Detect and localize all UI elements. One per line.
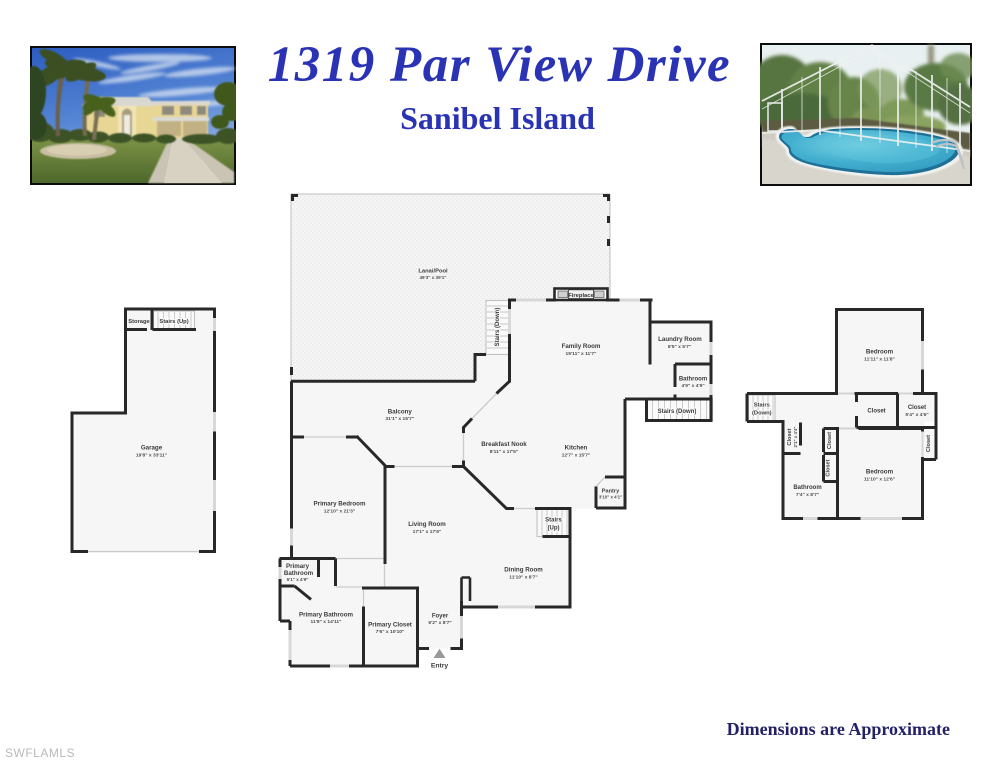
svg-text:19'8" x 33'11": 19'8" x 33'11" <box>136 452 167 458</box>
svg-text:Bedroom: Bedroom <box>866 349 894 356</box>
svg-text:Closet: Closet <box>908 405 926 411</box>
svg-text:Breakfast Nook: Breakfast Nook <box>481 441 527 448</box>
svg-text:Balcony: Balcony <box>388 409 413 416</box>
svg-text:6'2" x 8'7": 6'2" x 8'7" <box>428 620 451 626</box>
svg-text:11'10" x 8'7": 11'10" x 8'7" <box>509 574 537 580</box>
svg-text:Laundry Room: Laundry Room <box>658 336 702 343</box>
svg-text:Foyer: Foyer <box>432 614 449 620</box>
svg-text:Bathroom: Bathroom <box>793 485 821 491</box>
svg-text:Primary Bedroom: Primary Bedroom <box>314 501 366 508</box>
svg-text:Primary Closet: Primary Closet <box>368 622 412 629</box>
svg-text:Bathroom: Bathroom <box>284 570 314 577</box>
svg-text:17'1" x 17'6": 17'1" x 17'6" <box>413 529 442 535</box>
svg-text:11'11" x 11'8": 11'11" x 11'8" <box>864 356 895 362</box>
svg-text:8'11" x 17'5": 8'11" x 17'5" <box>490 449 518 455</box>
svg-text:(Down): (Down) <box>752 411 772 417</box>
svg-text:Family Room: Family Room <box>562 343 601 350</box>
svg-text:5'4" x 4'6": 5'4" x 4'6" <box>905 412 928 418</box>
svg-text:Closet: Closet <box>867 409 885 415</box>
svg-text:Stairs: Stairs <box>545 518 562 524</box>
svg-text:12'7" x 15'7": 12'7" x 15'7" <box>562 452 591 458</box>
svg-text:49'3" x 39'1": 49'3" x 39'1" <box>420 275 447 280</box>
svg-text:Living Room: Living Room <box>408 521 446 528</box>
svg-text:31'1" x 15'7": 31'1" x 15'7" <box>385 416 414 422</box>
svg-text:3'10" x 4'1": 3'10" x 4'1" <box>599 495 622 500</box>
svg-text:Stairs: Stairs <box>754 403 770 409</box>
svg-text:7'4" x 8'7": 7'4" x 8'7" <box>796 492 819 498</box>
svg-text:8'5" x 5'7": 8'5" x 5'7" <box>668 344 691 350</box>
svg-text:2'1" x 4'4": 2'1" x 4'4" <box>793 427 798 448</box>
svg-text:Garage: Garage <box>141 445 163 452</box>
svg-text:Closet: Closet <box>827 432 833 449</box>
svg-text:Entry: Entry <box>431 663 449 670</box>
svg-text:Dining Room: Dining Room <box>504 567 543 574</box>
svg-text:11'10" x 12'6": 11'10" x 12'6" <box>864 476 895 482</box>
svg-text:Closet: Closet <box>926 435 932 452</box>
svg-text:Stairs (Up): Stairs (Up) <box>159 319 188 325</box>
svg-text:7'6" x 10'10": 7'6" x 10'10" <box>376 629 405 635</box>
svg-text:(Up): (Up) <box>548 526 560 532</box>
svg-text:12'10" x 21'3": 12'10" x 21'3" <box>324 508 355 514</box>
svg-text:Closet: Closet <box>826 459 832 476</box>
svg-text:19'11" x 11'7": 19'11" x 11'7" <box>566 351 597 357</box>
svg-text:Fireplace: Fireplace <box>568 293 594 299</box>
svg-text:Bedroom: Bedroom <box>866 469 894 476</box>
svg-text:Kitchen: Kitchen <box>565 445 588 452</box>
svg-text:Storage: Storage <box>128 319 150 325</box>
svg-text:Lanai/Pool: Lanai/Pool <box>418 269 448 275</box>
svg-text:11'8" x 14'11": 11'8" x 14'11" <box>311 619 342 625</box>
svg-text:5'1" x 4'9": 5'1" x 4'9" <box>287 577 309 582</box>
svg-text:Stairs (Down): Stairs (Down) <box>495 308 501 347</box>
svg-text:Stairs (Down): Stairs (Down) <box>658 409 697 415</box>
svg-text:4'9" x 4'9": 4'9" x 4'9" <box>681 383 704 389</box>
svg-text:Bathroom: Bathroom <box>679 377 707 383</box>
svg-text:Primary Bathroom: Primary Bathroom <box>299 611 353 618</box>
